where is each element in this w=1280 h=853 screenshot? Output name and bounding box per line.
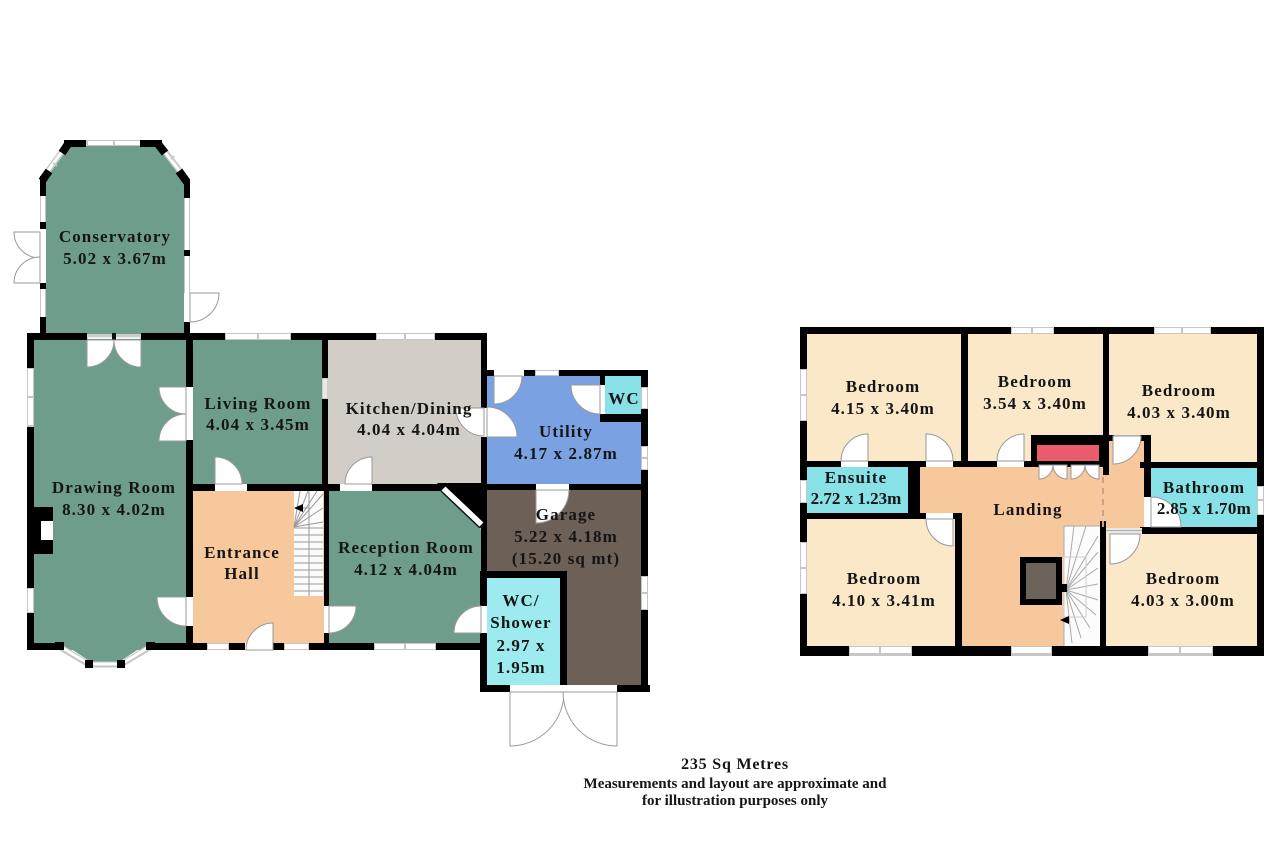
svg-text:Bedroom: Bedroom	[1146, 569, 1220, 588]
svg-text:2.85 x 1.70m: 2.85 x 1.70m	[1157, 499, 1251, 518]
svg-text:Garage: Garage	[536, 505, 596, 524]
svg-text:Measurements and layout are ap: Measurements and layout are approximate …	[584, 776, 888, 792]
svg-text:1.95m: 1.95m	[496, 658, 545, 677]
svg-text:Hall: Hall	[224, 564, 260, 583]
svg-text:Drawing Room: Drawing Room	[52, 478, 176, 497]
svg-text:Bathroom: Bathroom	[1163, 478, 1245, 497]
svg-text:Shower: Shower	[490, 613, 551, 632]
svg-text:Entrance: Entrance	[204, 543, 280, 562]
svg-text:Bedroom: Bedroom	[998, 372, 1072, 391]
svg-text:4.03 x 3.40m: 4.03 x 3.40m	[1127, 403, 1231, 422]
svg-text:4.12 x 4.04m: 4.12 x 4.04m	[354, 560, 458, 579]
svg-text:Landing: Landing	[993, 500, 1062, 519]
svg-text:Bedroom: Bedroom	[1142, 381, 1216, 400]
svg-text:Conservatory: Conservatory	[59, 227, 171, 246]
svg-text:5.02 x 3.67m: 5.02 x 3.67m	[63, 249, 167, 268]
svg-text:for illustration purposes only: for illustration purposes only	[642, 793, 828, 809]
svg-text:4.03 x 3.00m: 4.03 x 3.00m	[1131, 591, 1235, 610]
svg-text:Reception Room: Reception Room	[338, 538, 474, 557]
svg-text:2.72 x 1.23m: 2.72 x 1.23m	[811, 489, 902, 508]
svg-text:4.15 x 3.40m: 4.15 x 3.40m	[831, 399, 935, 418]
svg-text:5.22 x 4.18m: 5.22 x 4.18m	[514, 527, 618, 546]
svg-text:235 Sq Metres: 235 Sq Metres	[681, 756, 789, 773]
svg-text:Bedroom: Bedroom	[847, 569, 921, 588]
svg-text:4.04 x 4.04m: 4.04 x 4.04m	[357, 420, 461, 439]
svg-text:Bedroom: Bedroom	[846, 377, 920, 396]
svg-text:Ensuite: Ensuite	[825, 468, 888, 487]
svg-text:2.97 x: 2.97 x	[496, 636, 545, 655]
svg-text:8.30 x 4.02m: 8.30 x 4.02m	[62, 500, 166, 519]
svg-text:3.54 x 3.40m: 3.54 x 3.40m	[983, 394, 1087, 413]
svg-text:Living Room: Living Room	[204, 394, 311, 413]
svg-text:WC/: WC/	[502, 591, 539, 610]
svg-text:4.04 x 3.45m: 4.04 x 3.45m	[206, 415, 310, 434]
svg-text:4.17 x 2.87m: 4.17 x 2.87m	[514, 444, 618, 463]
svg-text:4.10 x 3.41m: 4.10 x 3.41m	[832, 591, 936, 610]
svg-text:Utility: Utility	[539, 422, 593, 441]
svg-text:Kitchen/Dining: Kitchen/Dining	[346, 399, 473, 418]
svg-text:(15.20 sq mt): (15.20 sq mt)	[512, 549, 620, 568]
svg-text:WC: WC	[608, 389, 639, 408]
